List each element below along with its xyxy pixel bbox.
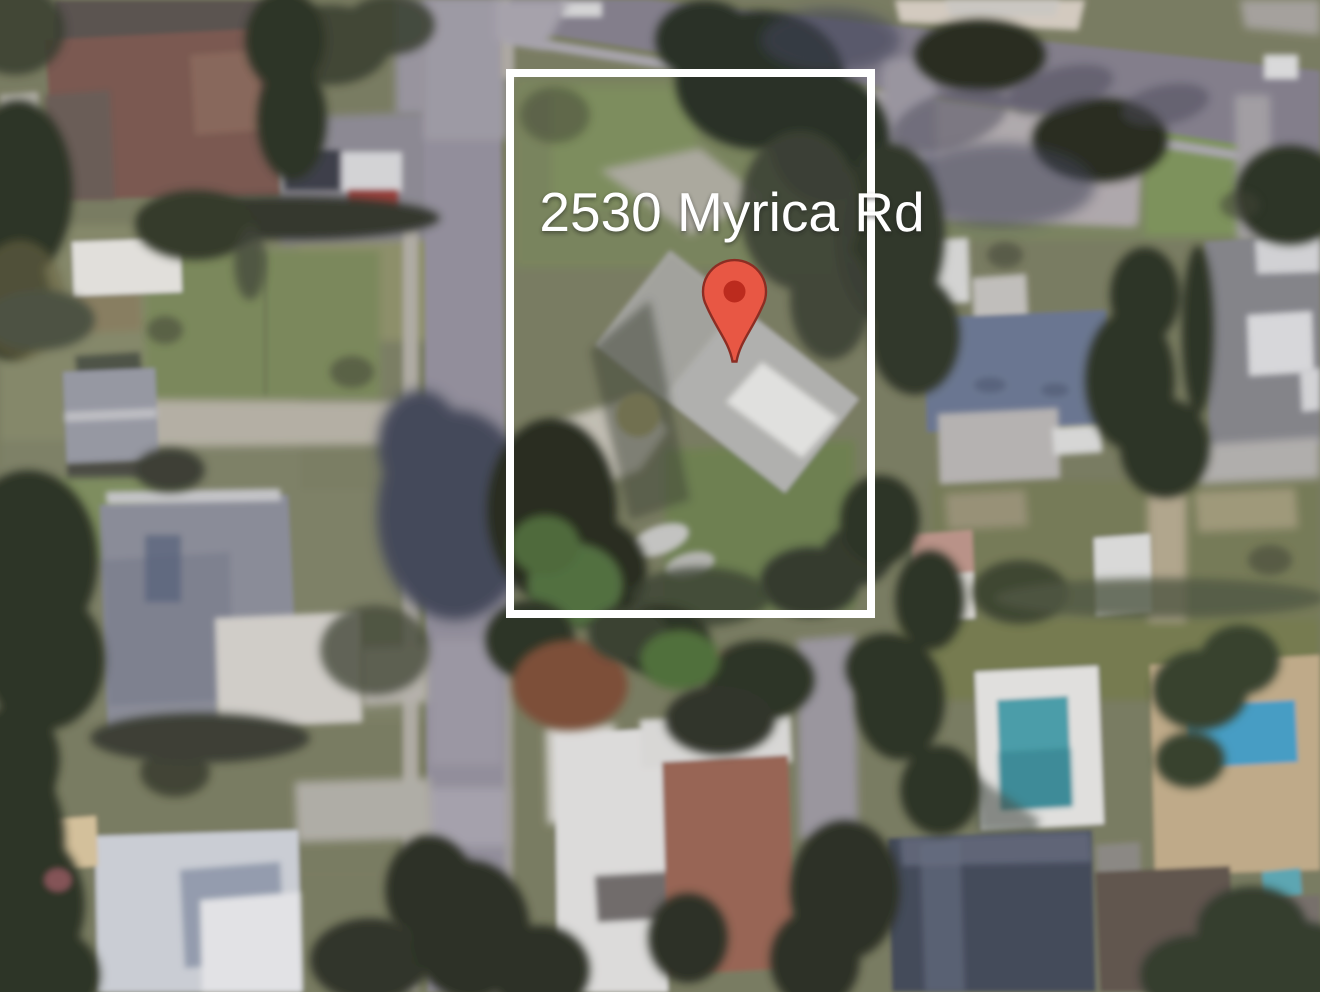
svg-text:2530 Myrica Rd: 2530 Myrica Rd xyxy=(539,181,924,243)
